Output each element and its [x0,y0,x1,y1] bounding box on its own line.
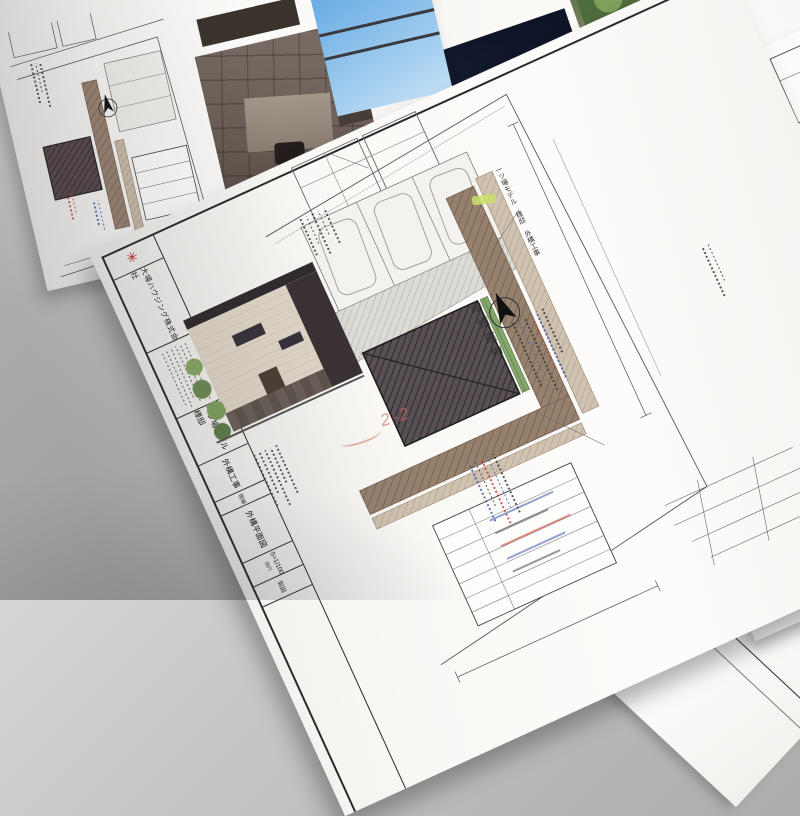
work-type: 外構工事 [219,457,242,491]
balcony-rail [319,8,435,37]
balcony-rail [324,31,440,60]
red-asterisk-logo: ✳ [123,247,141,267]
empty-cell [261,584,395,790]
house-corner [297,0,393,10]
drawing-name: 外構平面図 [243,509,270,550]
photo-of-architectural-drawings: { "colors": { "logo_red": "#c0272d", "pa… [0,0,800,600]
legend-row-mark [501,514,571,547]
drafter-label: 製図 [276,579,289,594]
